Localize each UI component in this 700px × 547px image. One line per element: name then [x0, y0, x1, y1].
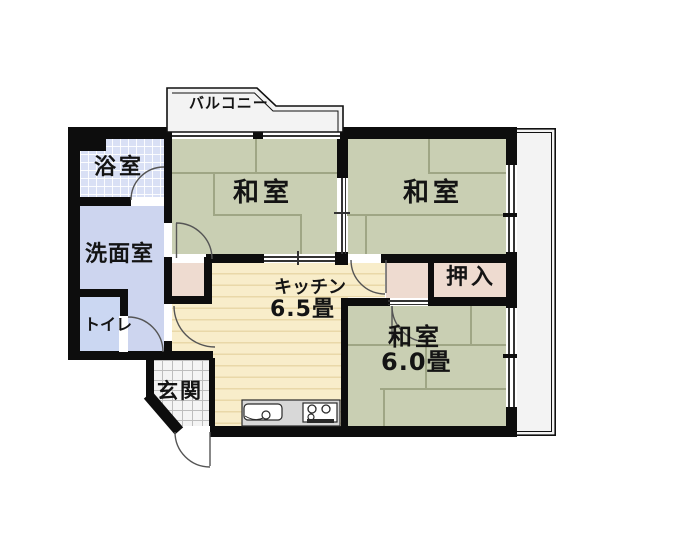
wall-block [515, 129, 540, 153]
door-gap [176, 426, 210, 437]
slider-tick [334, 212, 350, 214]
slider-line [388, 304, 428, 306]
wall-segment [340, 127, 515, 139]
kitchen-size-label: 6.5畳 [270, 298, 335, 321]
slider-line [345, 178, 347, 254]
wall-segment [209, 358, 215, 427]
wall-segment [210, 426, 517, 437]
slider-tick [297, 251, 299, 265]
wall-segment [164, 296, 212, 304]
wall-segment [68, 351, 213, 360]
tatami-line [383, 390, 385, 426]
window-mullion [503, 354, 520, 358]
slider-line [341, 178, 343, 254]
wall-segment [80, 289, 128, 297]
wall-block [509, 410, 540, 436]
toilet-label: トイレ [84, 317, 132, 334]
closet-vestibule [386, 263, 428, 298]
wall-segment [120, 297, 128, 317]
wall-segment [341, 298, 348, 432]
wall-segment [381, 254, 517, 263]
tatami-line [428, 172, 506, 174]
wall-segment [206, 254, 264, 263]
washitsu2-label: 和室 [403, 180, 463, 207]
tatami-line [347, 214, 506, 216]
tatami-line [380, 388, 506, 390]
wall-segment [342, 298, 390, 306]
wall-segment [428, 297, 517, 306]
window-line [508, 165, 510, 252]
tatami-line [172, 172, 337, 174]
balcony-label: バルコニー [189, 96, 269, 112]
washroom-label: 洗面室 [85, 243, 154, 266]
wall-segment [164, 341, 172, 353]
slider-line [264, 256, 335, 258]
side-corridor [517, 128, 556, 436]
window-mullion [253, 127, 263, 139]
wall-segment [68, 197, 131, 206]
washitsu3-label: 和室 [388, 325, 442, 350]
tatami-line [300, 216, 302, 254]
washitsu3-size-label: 6.0畳 [381, 350, 452, 375]
oshiire-label: 押入 [446, 266, 496, 289]
wall-segment [146, 351, 154, 399]
window-mullion [503, 213, 520, 217]
kitchen-label: キッチン [274, 279, 346, 298]
tatami-line [255, 133, 257, 173]
tatami-line [365, 216, 367, 254]
slider-line [264, 260, 335, 262]
entrance-door-arc [175, 432, 210, 467]
bath-label: 浴室 [94, 156, 144, 179]
tatami-line [470, 306, 472, 346]
window-line [513, 165, 515, 252]
tatami-line [428, 133, 430, 174]
wall-block [80, 138, 106, 151]
washitsu1-label: 和室 [233, 180, 293, 207]
closet-small [172, 263, 204, 296]
slider-line [388, 300, 428, 302]
genkan-label: 玄関 [157, 380, 203, 402]
tatami-line [213, 174, 215, 216]
wall-segment [68, 127, 80, 360]
wall-segment [164, 127, 172, 223]
tatami-line [213, 214, 302, 216]
floor-plan: バルコニー 浴室 洗面室 トイレ 玄関 和室 和室 押入 キッチン 6.5畳 和… [0, 0, 700, 547]
